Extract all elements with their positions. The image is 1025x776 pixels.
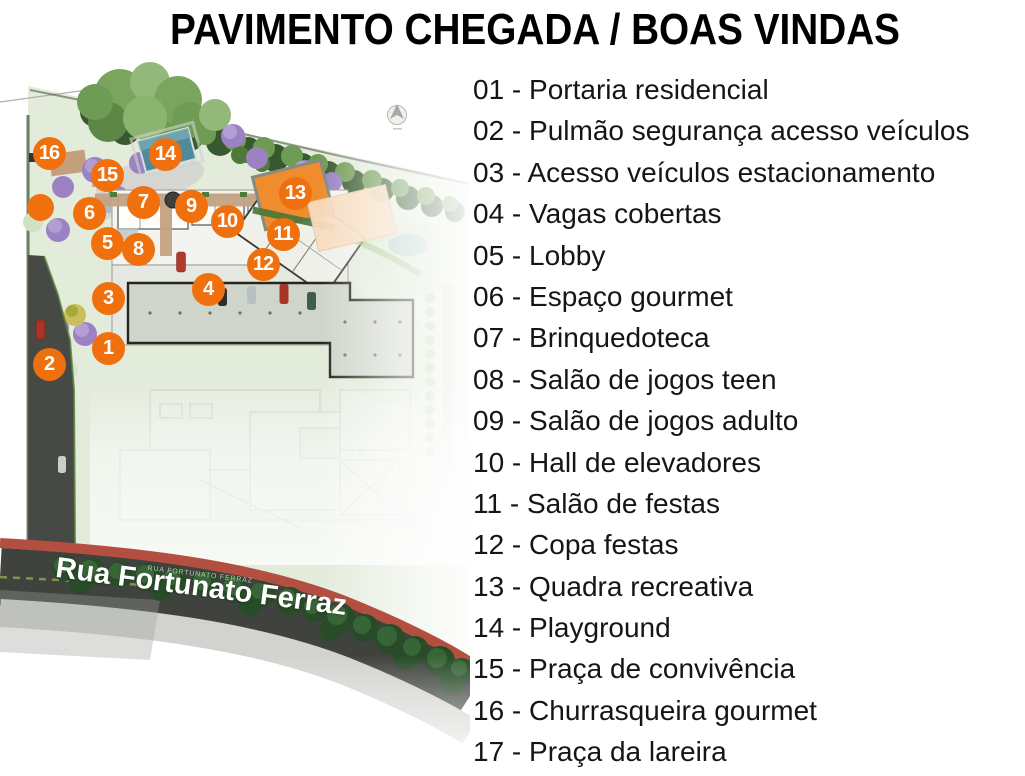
legend-item-04: 04 - Vagas cobertas	[473, 193, 1025, 234]
fade-sidewalk	[0, 655, 470, 776]
legend-item-03: 03 - Acesso veículos estacionamento	[473, 152, 1025, 193]
map-marker-16: 16	[33, 137, 66, 170]
fade-bottom	[90, 380, 470, 565]
map-marker-14: 14	[149, 138, 182, 171]
map-marker-15: 15	[91, 159, 124, 192]
legend-item-12: 12 - Copa festas	[473, 524, 1025, 565]
legend-item-09: 09 - Salão de jogos adulto	[473, 400, 1025, 441]
map-marker-3: 3	[92, 282, 125, 315]
map-marker-1: 1	[92, 332, 125, 365]
legend: 01 - Portaria residencial02 - Pulmão seg…	[473, 69, 1025, 773]
map-marker-2: 2	[33, 348, 66, 381]
map-marker-5: 5	[91, 227, 124, 260]
legend-item-13: 13 - Quadra recreativa	[473, 566, 1025, 607]
legend-item-11: 11 - Salão de festas	[473, 483, 1025, 524]
fade-right	[320, 60, 470, 680]
legend-item-10: 10 - Hall de elevadores	[473, 442, 1025, 483]
legend-item-01: 01 - Portaria residencial	[473, 69, 1025, 110]
map-marker-13: 13	[279, 177, 312, 210]
site-plan: Rua Fortunato Ferraz RUA FORTUNATO FERRA…	[0, 60, 470, 776]
legend-item-08: 08 - Salão de jogos teen	[473, 359, 1025, 400]
map-marker-8: 8	[122, 233, 155, 266]
map-marker-6: 6	[73, 197, 106, 230]
map-marker-9: 9	[175, 190, 208, 223]
map-marker-11: 11	[267, 218, 300, 251]
legend-item-06: 06 - Espaço gourmet	[473, 276, 1025, 317]
legend-item-16: 16 - Churrasqueira gourmet	[473, 690, 1025, 731]
legend-item-02: 02 - Pulmão segurança acesso veículos	[473, 110, 1025, 151]
page-title: PAVIMENTO CHEGADA / BOAS VINDAS	[117, 6, 953, 54]
map-marker-7: 7	[127, 186, 160, 219]
map-marker-dot	[27, 194, 54, 221]
map-marker-12: 12	[247, 248, 280, 281]
site-plan-svg	[0, 60, 470, 776]
legend-item-14: 14 - Playground	[473, 607, 1025, 648]
map-marker-10: 10	[211, 205, 244, 238]
legend-item-15: 15 - Praça de convivência	[473, 648, 1025, 689]
legend-item-17: 17 - Praça da lareira	[473, 731, 1025, 772]
legend-item-05: 05 - Lobby	[473, 235, 1025, 276]
map-marker-4: 4	[192, 273, 225, 306]
legend-item-07: 07 - Brinquedoteca	[473, 317, 1025, 358]
